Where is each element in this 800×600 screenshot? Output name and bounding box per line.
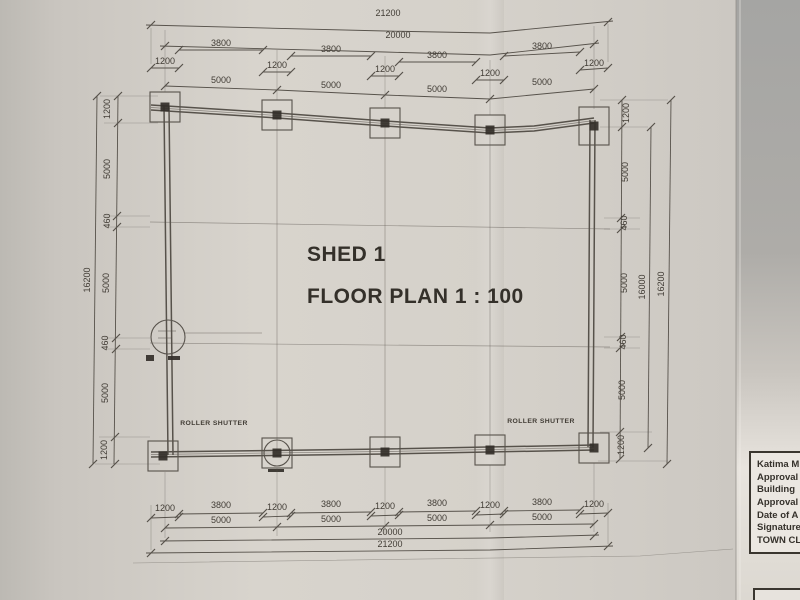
dim-top-col-5: 1200 (584, 58, 604, 68)
dim-right-overall: 16200 (656, 271, 666, 296)
dim-left-chain-4: 5000 (101, 273, 111, 293)
title-block-row-3: Building (757, 484, 795, 495)
dim-top-col-3: 1200 (375, 64, 395, 74)
dim-top-span: 20000 (385, 30, 410, 40)
roller-shutter-label-left: ROLLER SHUTTER (180, 420, 248, 427)
dim-top-col-2: 1200 (267, 60, 287, 70)
dim-left-overall: 16200 (82, 267, 92, 292)
dim-top-bay-3: 3800 (427, 50, 447, 60)
callout-tag-1 (146, 355, 154, 361)
dim-bottom-col-1: 1200 (155, 503, 175, 513)
dim-bottom-grid-3: 5000 (427, 513, 447, 523)
dim-left-chain-7: 1200 (99, 440, 109, 460)
callout-tag-2 (168, 356, 180, 360)
dim-bottom-grid-2: 5000 (321, 514, 341, 524)
title-block-row-2: Approval (757, 472, 798, 483)
dim-bottom-col-4: 1200 (480, 500, 500, 510)
roller-shutter-label-right: ROLLER SHUTTER (507, 418, 575, 425)
dim-bottom-bay-1: 3800 (211, 500, 231, 510)
dim-top-grid-2: 5000 (321, 80, 341, 90)
dim-right-chain-3: 460 (619, 215, 629, 230)
dim-right-chain-7: 1200 (616, 435, 626, 455)
plan-title: SHED 1 (307, 243, 386, 266)
dim-right-chain-1: 1200 (621, 103, 631, 123)
dim-bottom-span: 20000 (377, 527, 402, 537)
dim-top-grid-1: 5000 (211, 75, 231, 85)
dim-bottom-grid-1: 5000 (211, 515, 231, 525)
title-block-row-5: Date of A (757, 510, 798, 521)
title-block-row-1: Katima M (757, 459, 799, 470)
dim-top-grid-3: 5000 (427, 84, 447, 94)
dim-bottom-bay-4: 3800 (532, 497, 552, 507)
dim-right-span: 16000 (637, 274, 647, 299)
title-block-lower-border (754, 589, 800, 600)
dim-left-chain-5: 460 (100, 335, 110, 350)
dim-top-col-1: 1200 (155, 56, 175, 66)
dim-bottom-bay-2: 3800 (321, 499, 341, 509)
title-block-row-4: Approval (757, 497, 798, 508)
dim-bottom-overall: 21200 (377, 539, 402, 549)
floor-plan-sheet: 21200 20000 3800 3800 3800 3800 1200 120… (0, 0, 800, 600)
title-block-row-6: Signature (757, 522, 800, 533)
dim-left-chain-3: 460 (102, 213, 112, 228)
dim-left-chain-6: 5000 (100, 383, 110, 403)
dim-bottom-col-5: 1200 (584, 499, 604, 509)
dim-top-grid-4: 5000 (532, 77, 552, 87)
dim-bottom-col-3: 1200 (375, 501, 395, 511)
dim-left-chain-2: 5000 (102, 159, 112, 179)
detail-tag (268, 469, 284, 472)
dim-right-chain-6: 5000 (617, 380, 627, 400)
dim-top-bay-2: 3800 (321, 44, 341, 54)
dim-top-col-4: 1200 (480, 68, 500, 78)
dim-left-chain-1: 1200 (102, 99, 112, 119)
photographed-floor-plan: 21200 20000 3800 3800 3800 3800 1200 120… (0, 0, 800, 600)
dim-top-overall: 21200 (375, 8, 400, 18)
dim-right-chain-5: 460 (618, 334, 628, 349)
dim-right-chain-2: 5000 (620, 162, 630, 182)
dim-bottom-grid-4: 5000 (532, 512, 552, 522)
dim-top-bay-4: 3800 (532, 41, 552, 51)
dim-right-chain-4: 5000 (619, 273, 629, 293)
title-block-row-7: TOWN CL (757, 535, 800, 546)
plan-scale-title: FLOOR PLAN 1 : 100 (307, 285, 524, 308)
dim-top-bay-1: 3800 (211, 38, 231, 48)
dim-bottom-col-2: 1200 (267, 502, 287, 512)
dim-bottom-bay-3: 3800 (427, 498, 447, 508)
